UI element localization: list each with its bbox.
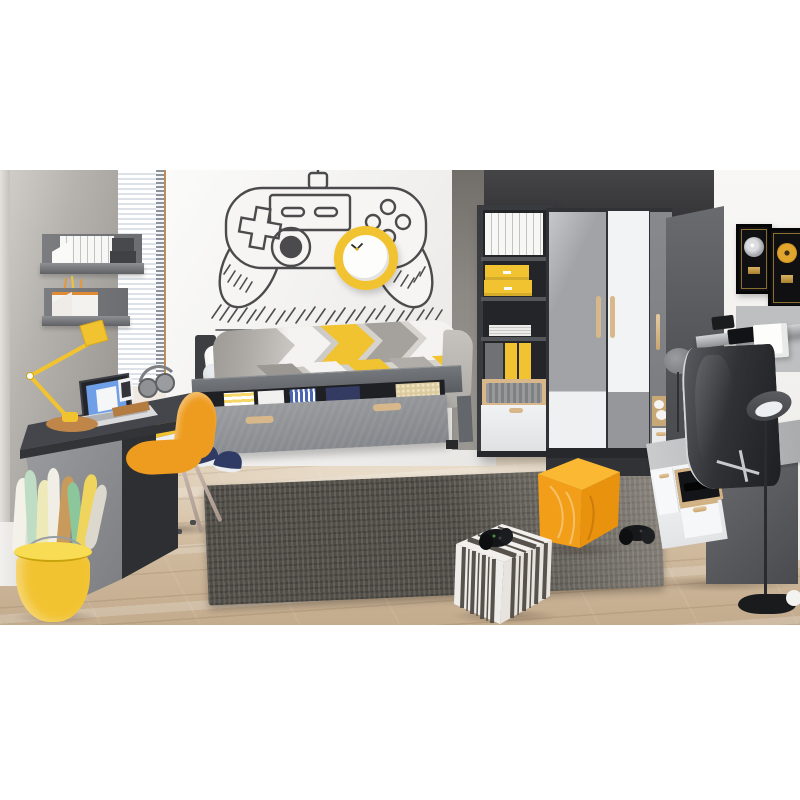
headphone-cup [139,379,157,397]
bed-leg [446,440,458,449]
camera [711,315,734,331]
shelf-board [481,297,549,301]
lamp-cord [677,372,679,432]
lamp-joint [27,373,34,380]
towel-roll [656,410,667,420]
pouf-striped [444,516,564,625]
towel-roll [654,400,664,409]
lamp-diffuser [753,399,784,420]
gray-folders [485,343,503,379]
bookcase [477,205,553,457]
gamepad-wall-decal-icon [198,170,458,345]
desk-lamp-head [80,320,108,346]
paper-stack [489,325,531,336]
record-frame-gold [768,228,800,308]
floor-lamp-pole [764,410,767,600]
drawer-handle [245,416,273,424]
screen-reflection [693,354,739,476]
silver-record-icon [744,237,764,257]
box-label [503,271,511,274]
headphone-cup [156,374,174,392]
smartphone-screen [121,381,131,398]
door-handle [509,408,523,413]
shelf-board [481,337,549,341]
screenshot-canvas [0,0,800,800]
white-binders [485,213,543,255]
white-ball [786,590,800,606]
yellow-folder [503,343,517,379]
room-photo [0,170,800,625]
lamp-arm [30,344,88,376]
shelf-board [481,257,549,261]
record-plaque [748,267,760,274]
wardrobe-handle [596,296,601,338]
wall-clock [334,226,398,290]
gold-record-icon [777,243,797,263]
wardrobe [546,208,672,476]
yellow-folder [517,343,531,379]
shelf-board [40,263,144,274]
clock-hands-icon [343,235,371,263]
wardrobe-handle [610,296,615,338]
gamepad-on-floor [616,522,658,548]
wardrobe-handle [656,314,660,350]
record-frame-silver [736,224,772,294]
wall-shelf-upper [40,234,144,276]
record-plaque [781,275,793,283]
drawer-handle [373,403,401,411]
drawer-side [457,396,473,443]
box-label [504,287,512,290]
wicker-basket [486,383,542,403]
storage-box [112,238,134,251]
bucket-rim [14,542,92,562]
lamp-mount [62,412,78,422]
drawer-handle [656,432,666,436]
